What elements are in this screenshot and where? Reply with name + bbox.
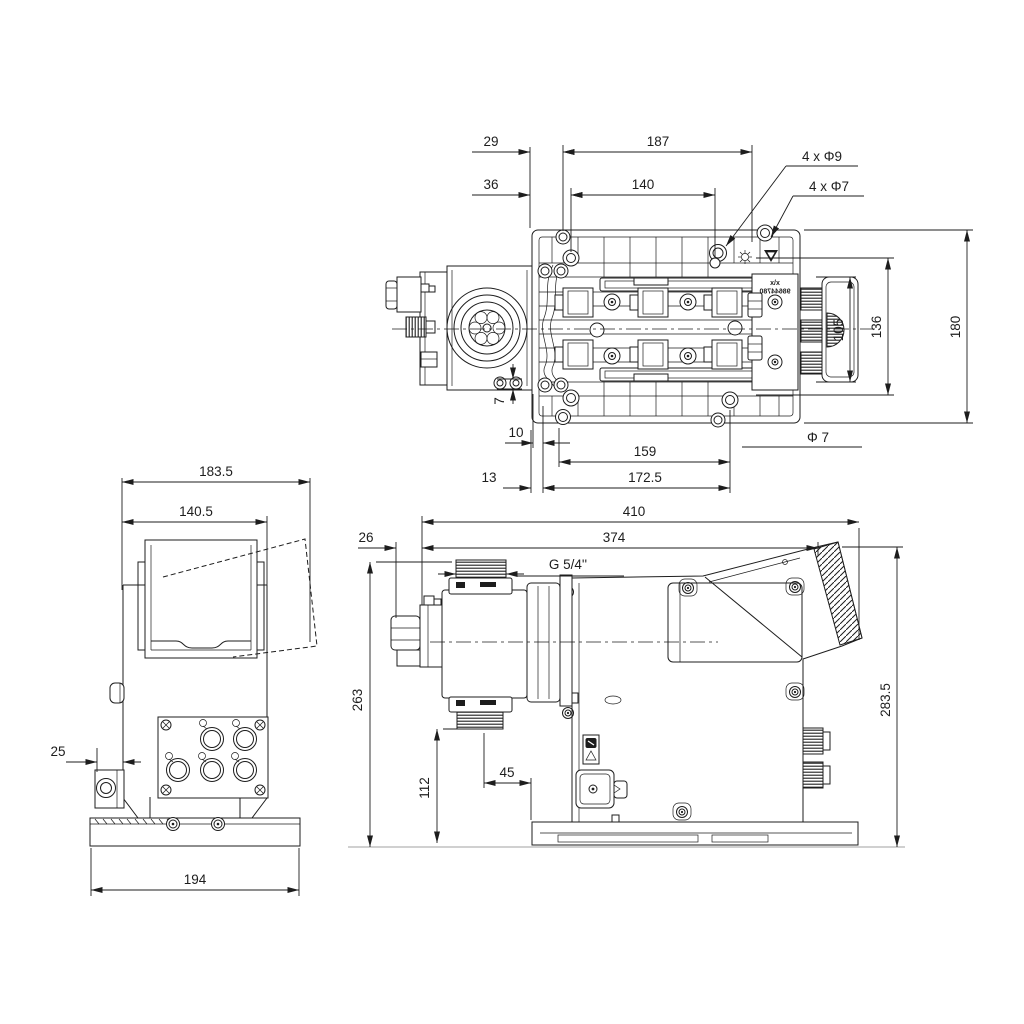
dimensional-drawing: x/x 98644780 (0, 0, 1024, 1024)
dim-label-180: 180 (948, 316, 963, 339)
cable-gland-icon (801, 288, 822, 310)
dimension-112: 112 (417, 729, 487, 843)
discharge-thread (456, 560, 506, 578)
dim-label-26: 26 (358, 530, 373, 545)
callout-4x-dia7: 4 x Φ7 (771, 179, 864, 237)
rating-label-block: x/x 98644780 (748, 274, 798, 390)
dimension-187: 187 (563, 134, 752, 242)
dim-label-112: 112 (417, 777, 432, 799)
front-view: 183.5 140.5 25 194 (50, 464, 317, 896)
enclosure-side (563, 542, 863, 822)
dim-label-283-5: 283.5 (878, 683, 893, 717)
dim-label-105: 105 (831, 319, 846, 342)
cable-gland-icon (803, 728, 823, 754)
dim-label-159: 159 (634, 444, 657, 459)
dim-label-187: 187 (647, 134, 670, 149)
dim-label-172-5: 172.5 (628, 470, 662, 485)
label-xx: x/x (770, 280, 780, 287)
dim-label-140-5: 140.5 (179, 504, 213, 519)
side-view: 410 374 26 G 5/4'' 263 283.5 (348, 504, 905, 847)
dim-label-45: 45 (499, 765, 514, 780)
dim-label-410: 410 (623, 504, 646, 519)
drawing-canvas: x/x 98644780 (0, 0, 1024, 1024)
dimension-374: 374 (422, 530, 818, 556)
dim-label-263: 263 (350, 689, 365, 712)
connector-panel (158, 717, 268, 798)
warning-label (583, 735, 599, 764)
side-boss (110, 683, 124, 703)
dim-label-194: 194 (184, 872, 207, 887)
callout-dia7: Φ 7 (742, 430, 862, 447)
dim-label-13: 13 (481, 470, 496, 485)
dimension-194: 194 (91, 848, 299, 896)
cable-gland-icon (801, 320, 822, 342)
dimension-25: 25 (50, 744, 141, 772)
dim-label-183-5: 183.5 (199, 464, 233, 479)
cable-gland-icon (803, 762, 823, 788)
pump-head-top (386, 266, 532, 390)
hole-callout-label: 4 x Φ9 (802, 149, 842, 164)
dim-label-374: 374 (603, 530, 626, 545)
cable-gland-icon (801, 352, 822, 374)
top-view: x/x 98644780 (386, 134, 973, 493)
suction-thread (457, 712, 503, 729)
base-plate-front (90, 818, 300, 847)
hole-callout-label: 4 x Φ7 (809, 179, 849, 194)
dim-label-25: 25 (50, 744, 65, 759)
dimension-283-5: 283.5 (842, 547, 903, 847)
control-cube-top (801, 277, 858, 382)
dim-label-7: 7 (492, 397, 507, 405)
dim-label-29: 29 (483, 134, 498, 149)
dim-label-10: 10 (508, 425, 523, 440)
knurled-knob (406, 317, 426, 337)
dim-label-36: 36 (483, 177, 498, 192)
label-part-number-mirrored: 98644780 (759, 289, 790, 296)
dim-label-140: 140 (632, 177, 655, 192)
control-box-front (138, 540, 264, 658)
dimension-172-5: 172.5 (543, 470, 730, 488)
dimension-45: 45 (484, 733, 531, 820)
dimension-26: 26 (358, 530, 396, 618)
dim-label-136: 136 (869, 316, 884, 339)
mounting-lug (95, 770, 124, 808)
thread-label: G 5/4'' (549, 557, 587, 572)
dim-label-dia7: Φ 7 (807, 430, 829, 445)
